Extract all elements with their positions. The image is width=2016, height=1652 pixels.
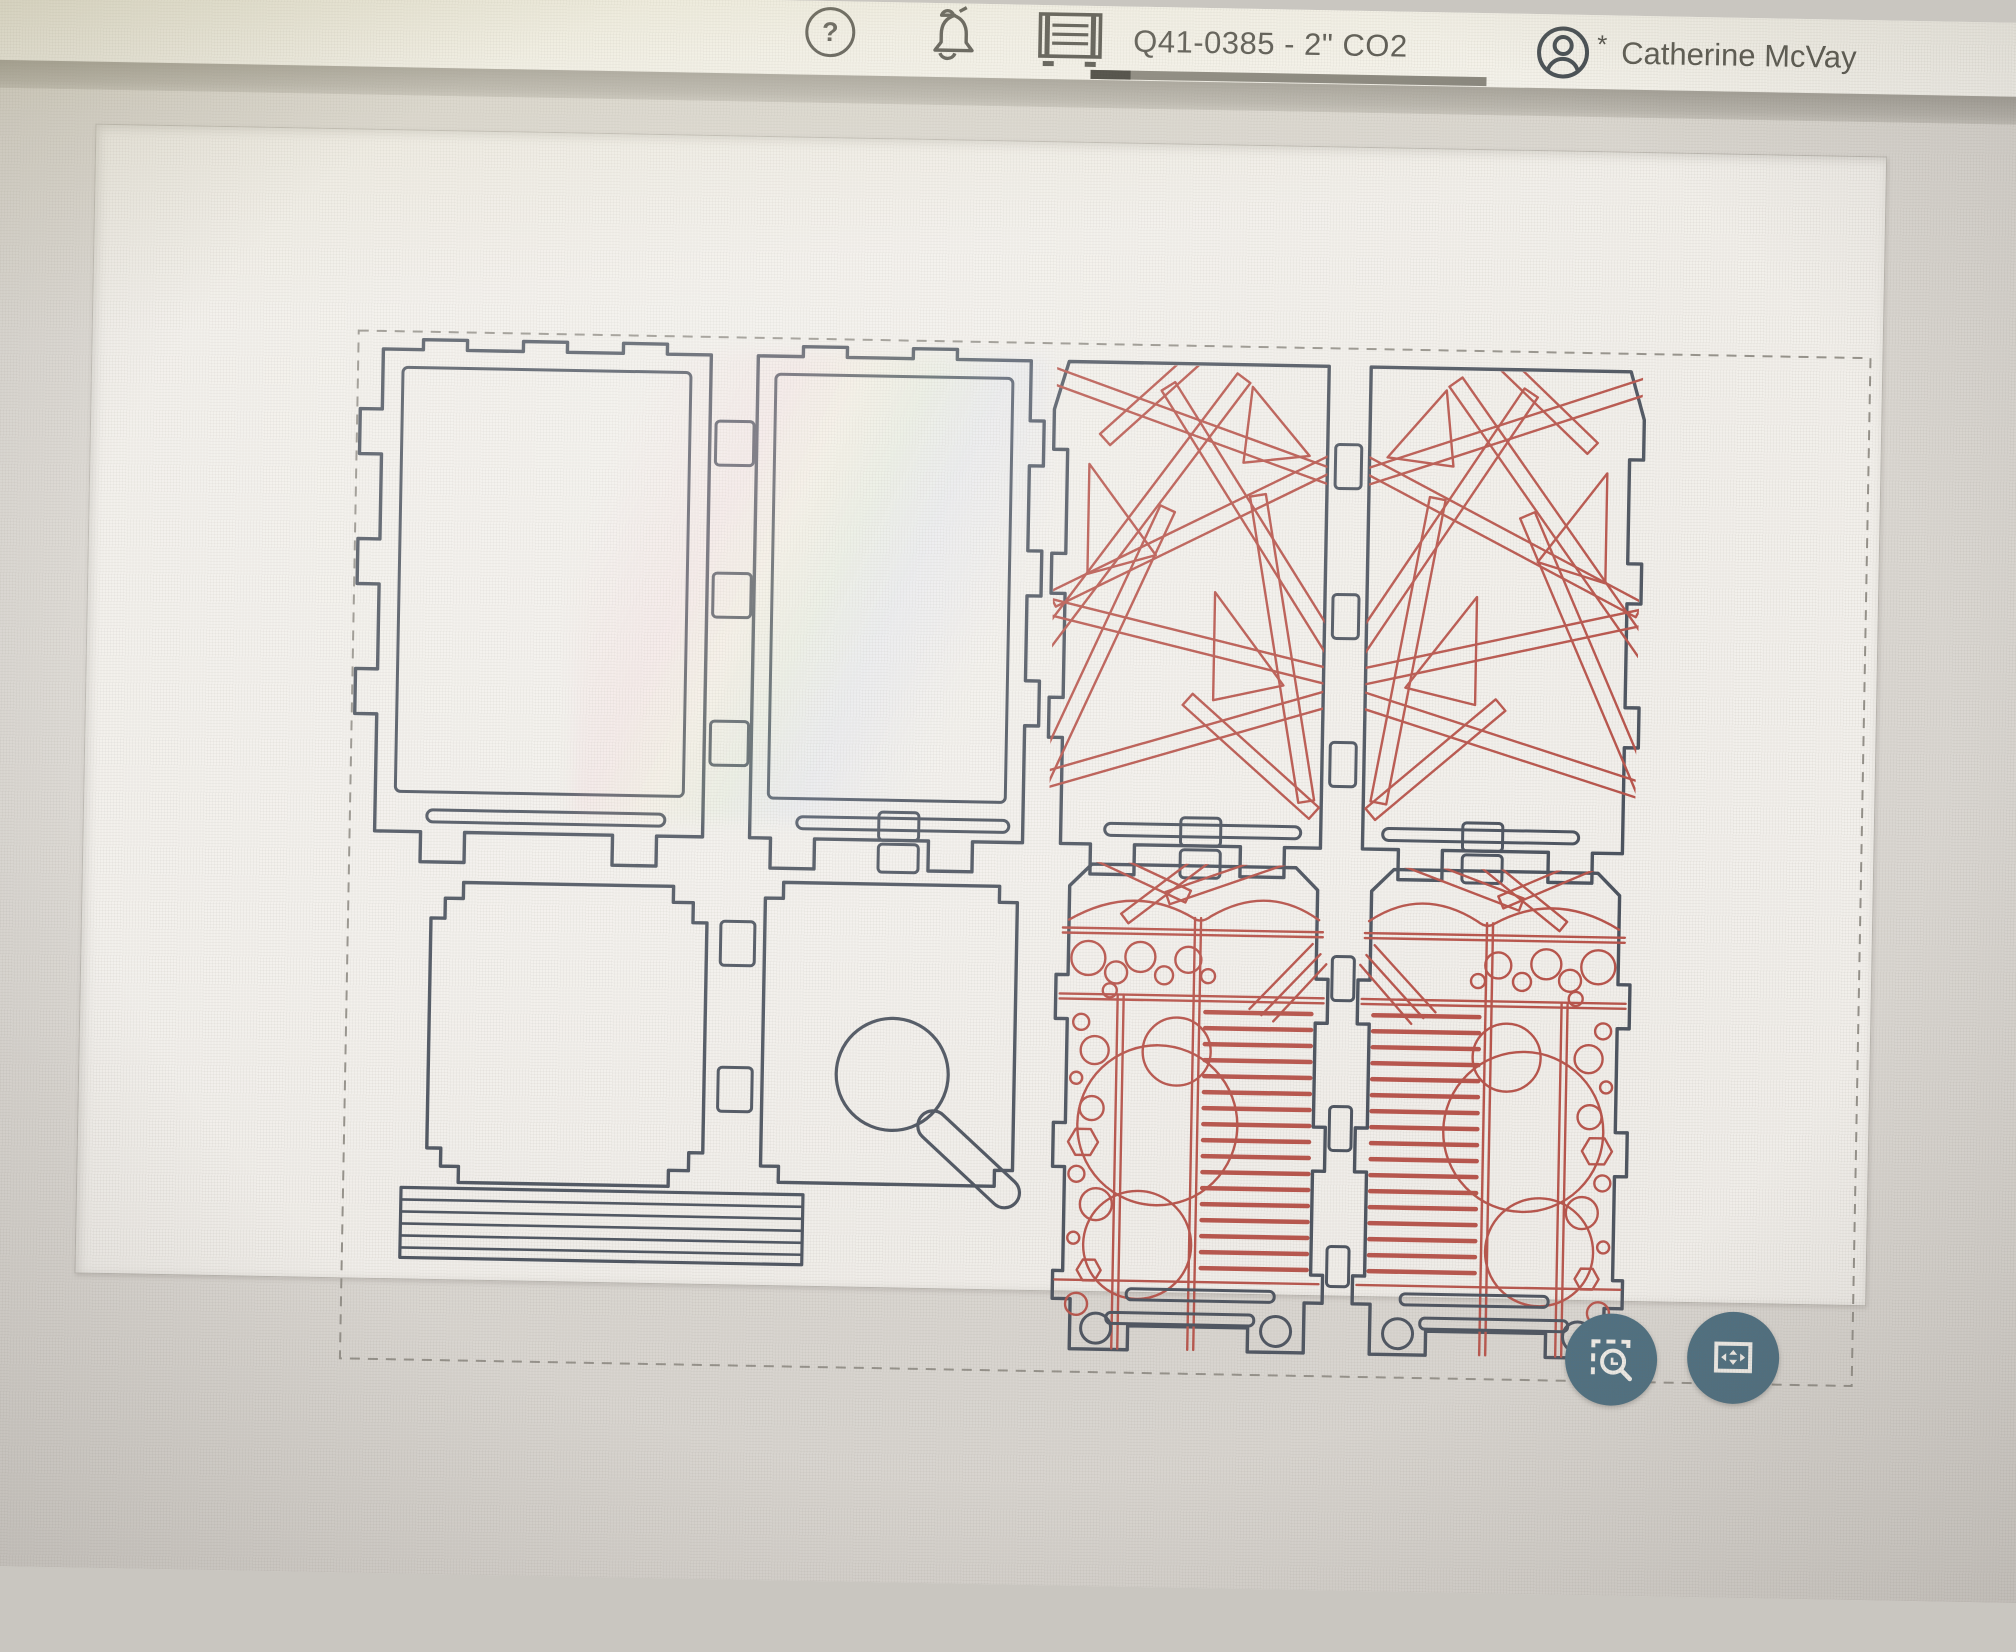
finger-joint-column	[1326, 956, 1354, 1286]
panel-lattice-2[interactable]	[1328, 322, 1664, 884]
help-icon: ?	[805, 7, 856, 58]
panel-base[interactable]	[426, 882, 707, 1187]
application-window: ? Q41-0385 - 2" CO2	[0, 0, 2016, 1604]
laser-machine-icon	[1037, 11, 1112, 70]
panel-lid-1[interactable]	[352, 339, 712, 867]
panel-base-keyhole[interactable]	[760, 882, 1032, 1214]
account-circle-icon	[1535, 24, 1592, 81]
finger-joint-column	[718, 921, 755, 1112]
help-button[interactable]: ?	[805, 7, 856, 58]
notifications-button[interactable]	[919, 5, 976, 66]
keyhole-circle	[835, 1017, 949, 1131]
user-menu[interactable]: * Catherine McVay	[1535, 24, 1858, 86]
finger-joint-column	[710, 421, 754, 766]
machine-label: Q41-0385 - 2" CO2	[1133, 24, 1408, 65]
user-badge: *	[1597, 29, 1608, 60]
zoom-area-icon	[1585, 1333, 1638, 1386]
keyhole-stem	[912, 1105, 1026, 1214]
strip-stack[interactable]	[400, 1187, 803, 1264]
user-name: Catherine McVay	[1621, 36, 1857, 76]
panel-decor-side-2[interactable]	[1351, 845, 1632, 1359]
design-canvas[interactable]	[0, 102, 2014, 1651]
finger-joint-column	[1330, 444, 1362, 786]
panel-decor-side-1[interactable]	[1049, 840, 1330, 1354]
machine-progress-fill	[1090, 70, 1130, 80]
fit-screen-icon	[1707, 1331, 1760, 1384]
panel-lattice-1[interactable]	[1028, 317, 1364, 879]
machine-selector[interactable]: Q41-0385 - 2" CO2	[1037, 11, 1409, 76]
bell-icon	[919, 5, 976, 66]
panel-lid-2[interactable]	[749, 346, 1046, 873]
canvas-background	[0, 87, 2016, 1604]
